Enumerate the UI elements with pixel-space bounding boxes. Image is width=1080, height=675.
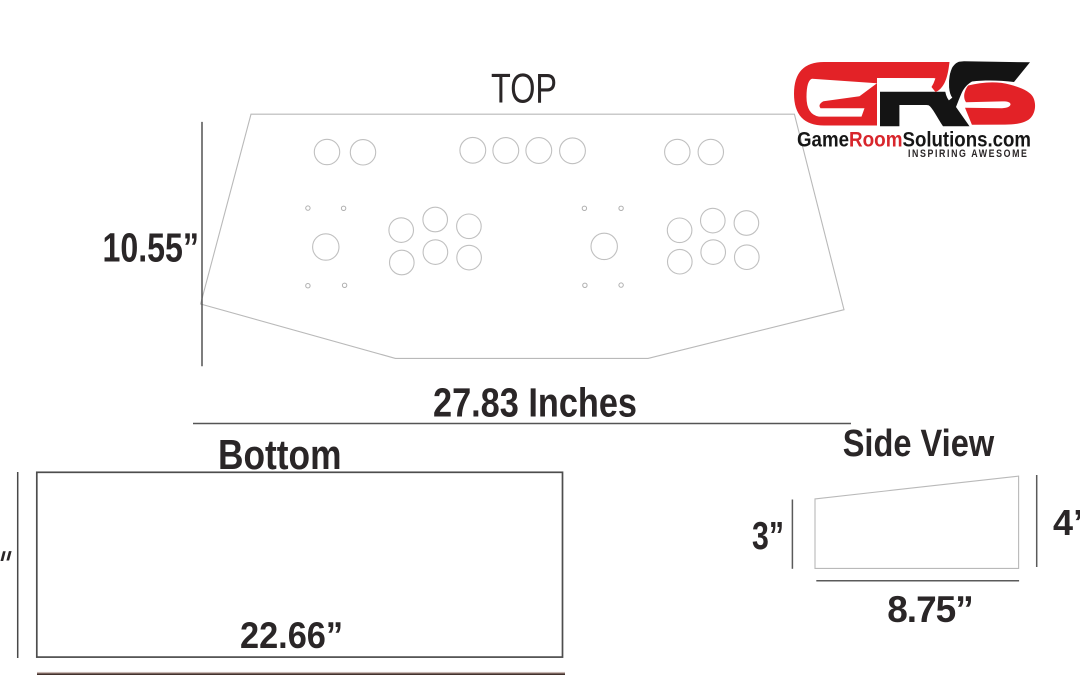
svg-text:Room: Room (849, 127, 903, 151)
svg-text:Bottom: Bottom (218, 431, 342, 478)
svg-text:4”: 4” (1053, 502, 1080, 543)
svg-text:INSPIRING AWESOME: INSPIRING AWESOME (908, 148, 1029, 160)
svg-text:Side View: Side View (843, 423, 995, 465)
svg-text:8.75”: 8.75” (887, 589, 973, 630)
svg-text:22.66”: 22.66” (240, 615, 343, 656)
svg-text:10.55”: 10.55” (103, 225, 200, 271)
svg-text:Game: Game (797, 127, 849, 151)
svg-text:TOP: TOP (491, 65, 557, 112)
svg-text:27.83 Inches: 27.83 Inches (433, 380, 637, 426)
svg-text:3”: 3” (752, 515, 784, 558)
